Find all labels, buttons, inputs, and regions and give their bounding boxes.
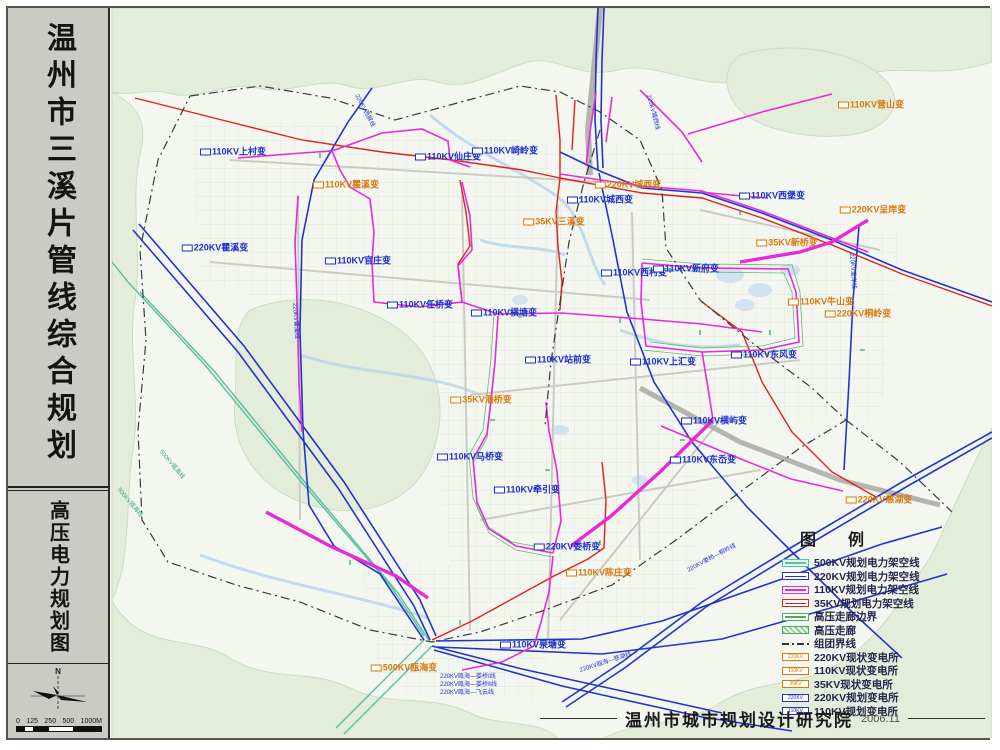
scale-tick: 0 (16, 718, 20, 725)
substation-marker (846, 497, 857, 504)
legend-item: 35KV规划电力架空线 (782, 597, 982, 611)
scale-tick: 250 (44, 718, 56, 725)
substation-marker (494, 487, 505, 494)
divider (8, 486, 108, 488)
route-label: 500KV瓯海线 (158, 449, 186, 480)
route-label: 220KV呈岸线 (848, 253, 856, 289)
substation-label: 110KV马桥变 (437, 453, 503, 462)
legend-item: 110KV110KV现状变电所 (782, 664, 982, 678)
route-label: 220KV城西线 (645, 94, 660, 130)
substation-marker (500, 642, 511, 649)
substation-marker (653, 266, 664, 273)
substation-label: 110KV城西变 (567, 196, 633, 205)
substation-marker (523, 219, 534, 226)
footer-date: 2006.11 (861, 713, 900, 725)
legend-item: 高压走廊 (782, 624, 982, 638)
legend-item: 35KV35KV现状变电所 (782, 678, 982, 692)
substation-label: 110KV横屿变 (681, 417, 747, 426)
substation-label: 110KV任桥变 (387, 301, 453, 310)
route-label: 220KV瓯海—娄桥Ⅰ线 (440, 674, 496, 680)
scale-bar-segments (16, 726, 102, 732)
substation-label: 35KV潘桥变 (450, 396, 512, 405)
footer-rule-right (908, 718, 985, 719)
footer: 温州市城市规划设计研究院 2006.11 (540, 706, 985, 731)
route-label: 500KV瓯海线 (116, 487, 144, 518)
scale-bar: 01252505001000M (16, 718, 102, 732)
substation-label: 110KV牛山变 (788, 298, 854, 307)
legend-item: 220KV220KV规划变电所 (782, 691, 982, 705)
legend-item: 组团界线 (782, 637, 982, 651)
substation-label: 110KV牵引变 (494, 486, 560, 495)
substation-label: 110KV泉塘变 (500, 641, 566, 650)
substation-label: 35KV三溪变 (523, 218, 585, 227)
substation-label: 110KV东岙变 (670, 456, 736, 465)
substation-marker (756, 240, 767, 247)
scale-ticks: 01252505001000M (16, 718, 102, 725)
substation-label: 220KV城西变 (595, 181, 662, 190)
substation-marker (731, 352, 742, 359)
substation-label: 35KV新桥变 (756, 239, 818, 248)
substation-marker (471, 310, 482, 317)
substation-label: 110KV官庄变 (325, 257, 391, 266)
substation-marker (200, 149, 211, 156)
divider (8, 490, 108, 491)
substation-marker (566, 570, 577, 577)
substation-label: 110KV新府变 (653, 265, 719, 274)
route-label: 220KV瓯海—慈湖线 (579, 651, 632, 673)
substation-label: 110KV营山变 (838, 101, 904, 110)
substation-label: 500KV瓯海变 (371, 664, 438, 673)
substation-marker (472, 148, 483, 155)
substation-label: 220KV慈湖变 (846, 496, 913, 505)
route-label: 220KV娄桥—桐岭线 (687, 543, 738, 574)
legend-swatch-station: 110KV (782, 667, 809, 675)
map-title: 温州市三溪片管线综合规划 (8, 22, 108, 480)
substation-marker (450, 397, 461, 404)
compass: N (8, 668, 108, 717)
substation-marker (182, 245, 193, 252)
scale-tick: 125 (26, 718, 38, 725)
substation-marker (670, 457, 681, 464)
substation-label: 110KV西堡变 (739, 192, 805, 201)
scale-tick: 500 (63, 718, 75, 725)
substation-label: 220KV娄桥变 (534, 543, 601, 552)
footer-rule-left (540, 718, 617, 719)
substation-marker (838, 102, 849, 109)
legend-item: 220KV规划电力架空线 (782, 570, 982, 584)
substation-marker (415, 154, 426, 161)
substation-marker (325, 258, 336, 265)
legend-item: 220KV220KV现状变电所 (782, 651, 982, 665)
legend-swatch-corridor (782, 626, 809, 634)
legend-items: 500KV规划电力架空线220KV规划电力架空线110KV规划电力架空线35KV… (782, 556, 982, 718)
substation-marker (567, 197, 578, 204)
substation-marker (630, 359, 641, 366)
substation-marker (739, 193, 750, 200)
sidebar: 温州市三溪片管线综合规划 高压电力规划图 N 01252505001000M (8, 8, 110, 738)
substation-marker (681, 418, 692, 425)
substation-marker (313, 182, 324, 189)
substation-label: 110KV瞿溪变 (313, 181, 379, 190)
north-label: N (8, 668, 108, 676)
legend-swatch-line (782, 559, 809, 567)
legend-swatch-line (782, 586, 809, 594)
legend-item: 500KV规划电力架空线 (782, 556, 982, 570)
substation-marker (601, 270, 612, 277)
legend-swatch-line (782, 613, 809, 621)
scale-tick: 1000M (81, 718, 102, 725)
substation-label: 220KV桐岭变 (825, 310, 892, 319)
divider (8, 663, 108, 664)
route-label: 220KV瞿溪线 (291, 303, 299, 339)
route-label: 220KV瓯海—飞云线 (440, 690, 494, 696)
substation-label: 110KV崎岭变 (472, 147, 538, 156)
institute-name: 温州市城市规划设计研究院 (625, 706, 853, 731)
substation-label: 110KV站前变 (525, 356, 591, 365)
substation-marker (788, 299, 799, 306)
substation-label: 110KV上村变 (200, 148, 266, 157)
compass-icon (23, 676, 93, 712)
route-label: 220KV西屏线 (353, 94, 375, 129)
substation-marker (387, 302, 398, 309)
legend-swatch-line (782, 572, 809, 580)
substation-marker (371, 665, 382, 672)
legend-swatch-station: 220KV (782, 653, 809, 661)
substation-marker (825, 311, 836, 318)
legend-swatch-dashdot (782, 643, 809, 645)
substation-marker (595, 182, 606, 189)
substation-label: 110KV横塘变 (471, 309, 537, 318)
legend-item: 110KV规划电力架空线 (782, 583, 982, 597)
substation-marker (840, 207, 851, 214)
legend: 图 例 500KV规划电力架空线220KV规划电力架空线110KV规划电力架空线… (782, 526, 982, 718)
legend-item: 高压走廊边界 (782, 610, 982, 624)
map-subtitle: 高压电力规划图 (8, 500, 108, 660)
page: 110KV上村变220KV瞿溪变110KV官庄变110KV仙庄变110KV崎岭变… (0, 0, 1000, 750)
legend-title: 图 例 (800, 526, 982, 550)
substation-marker (525, 357, 536, 364)
substation-label: 110KV东风变 (731, 351, 797, 360)
substation-label: 220KV瞿溪变 (182, 244, 249, 253)
substation-label: 220KV呈岸变 (840, 206, 907, 215)
route-label: 220KV瓯海—娄桥Ⅱ线 (440, 682, 497, 688)
substation-marker (534, 544, 545, 551)
substation-label: 110KV上汇变 (630, 358, 696, 367)
legend-swatch-line (782, 599, 809, 607)
legend-swatch-station: 220KV (782, 694, 809, 702)
legend-swatch-station: 35KV (782, 680, 809, 688)
substation-label: 110KV陈庄变 (566, 569, 632, 578)
substation-marker (437, 454, 448, 461)
